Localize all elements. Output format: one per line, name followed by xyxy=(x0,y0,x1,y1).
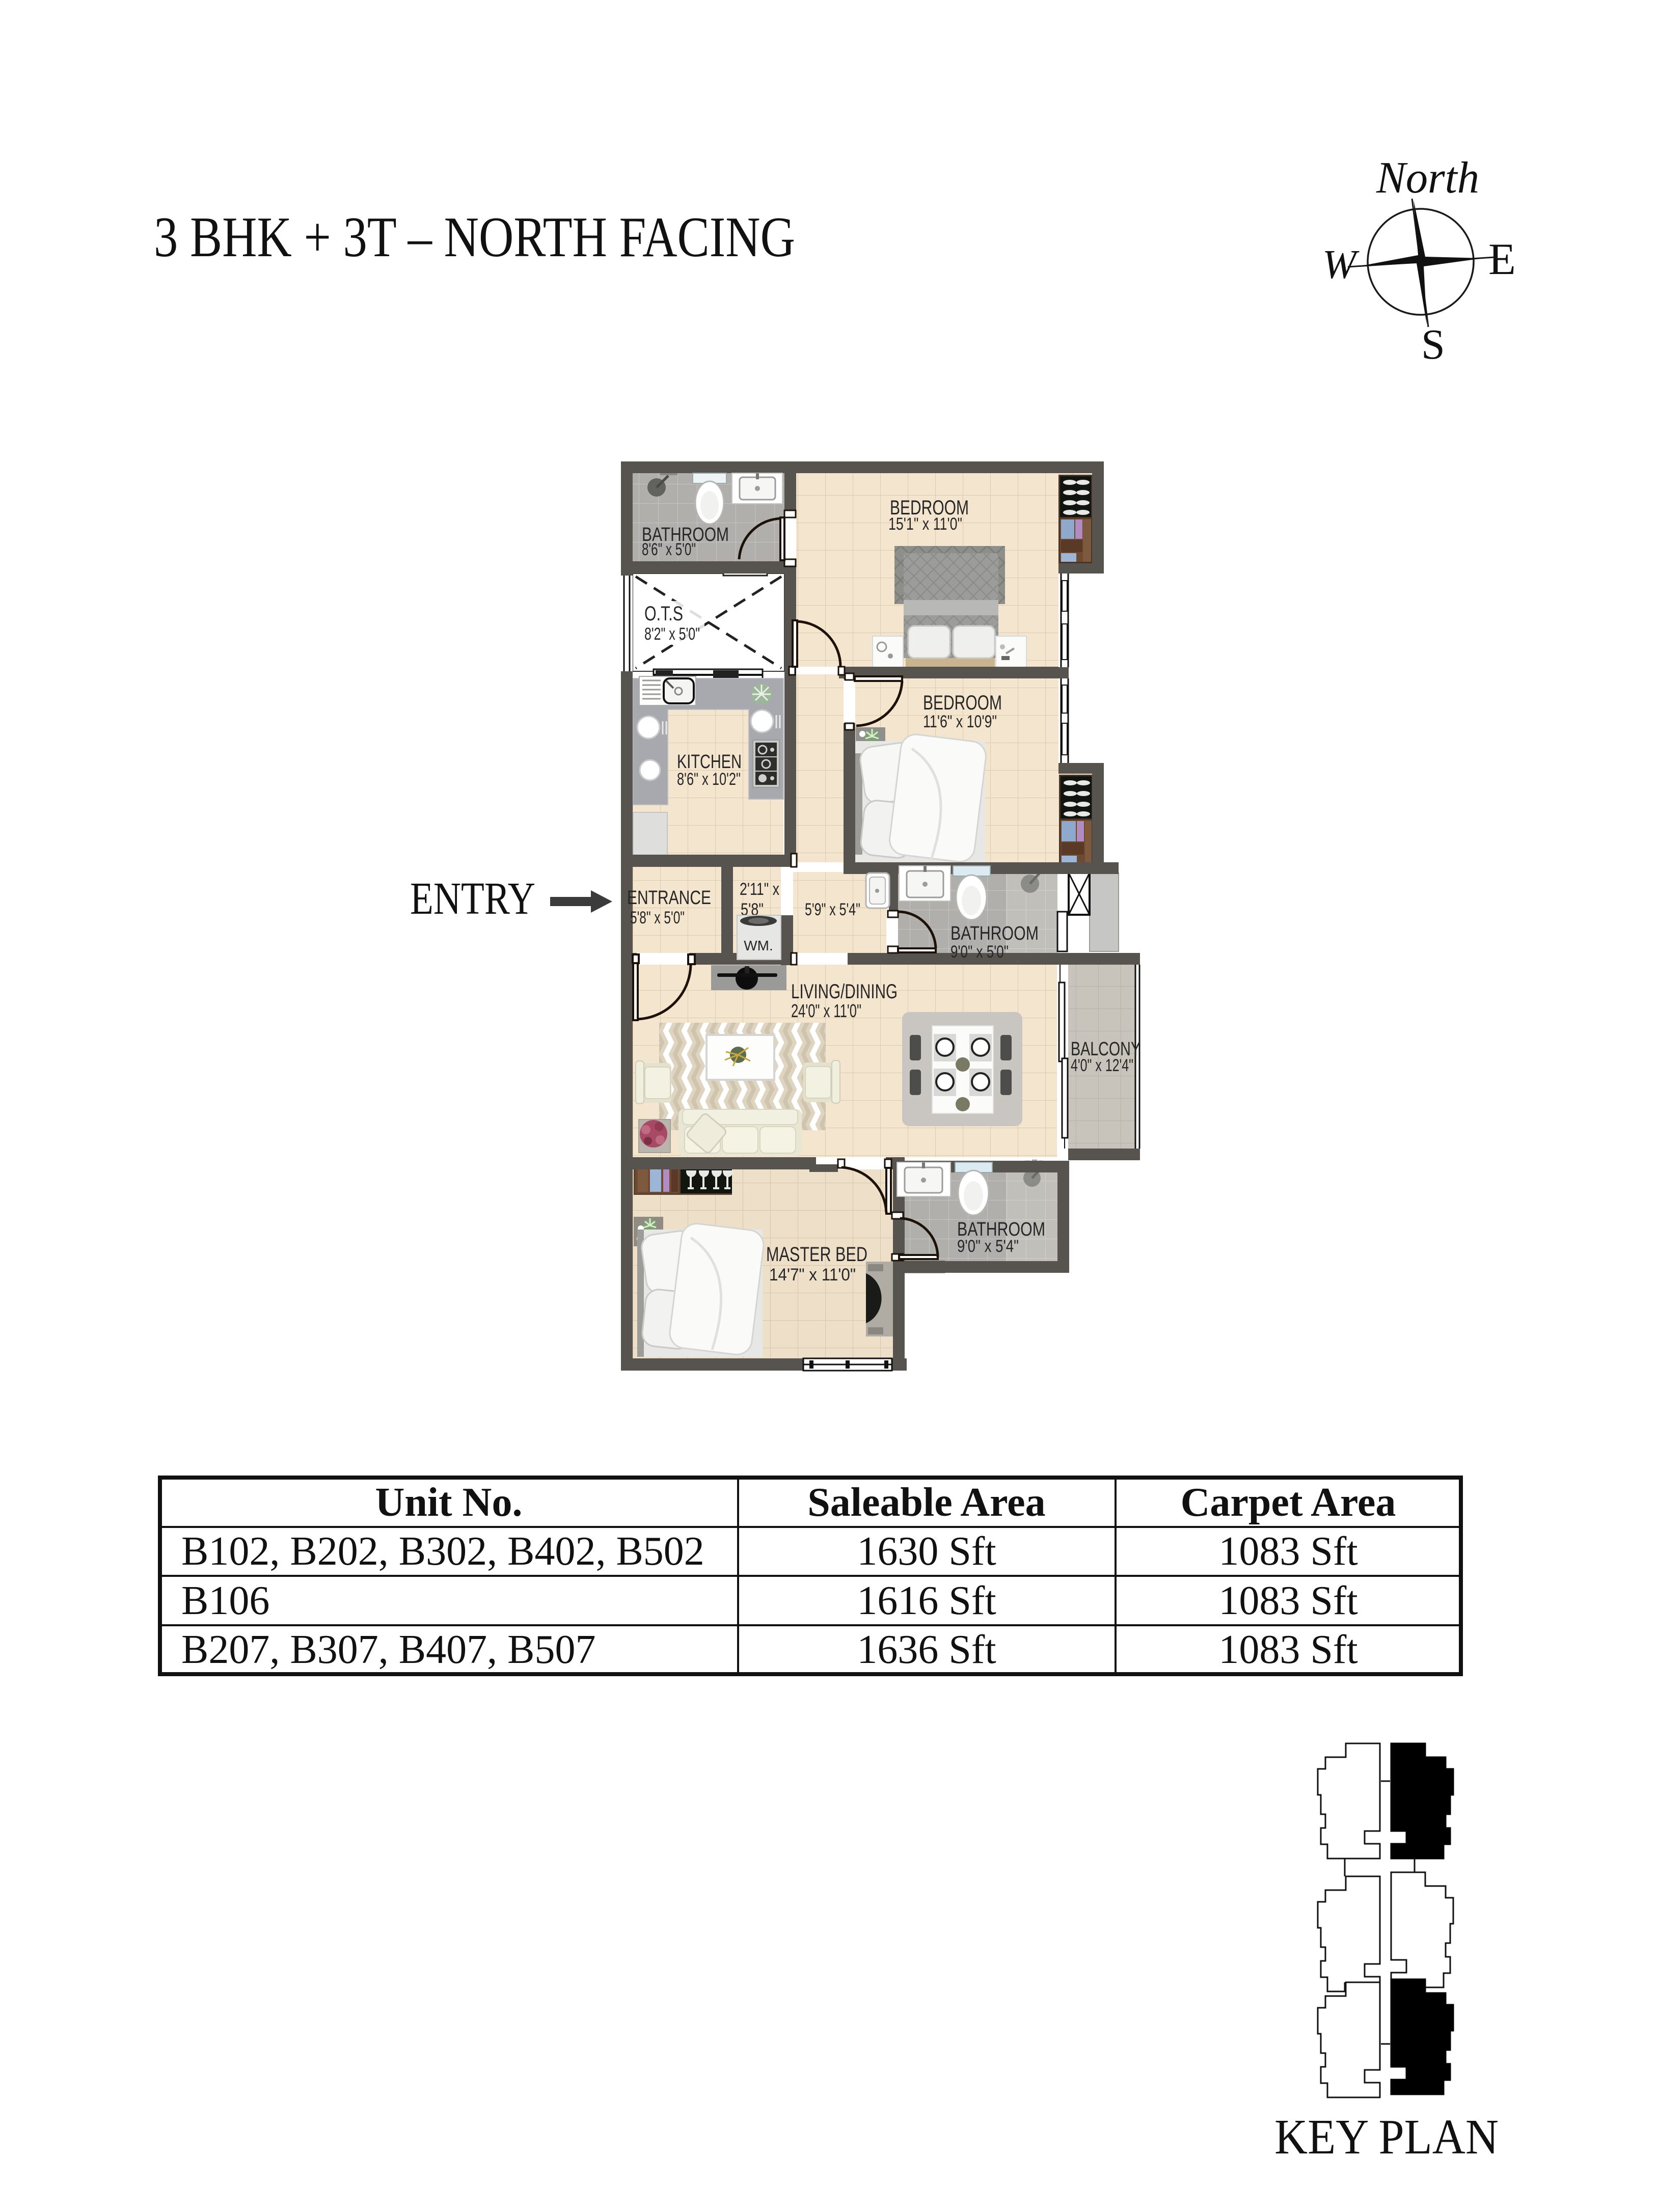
svg-text:1616 Sft: 1616 Sft xyxy=(857,1578,996,1623)
svg-text:BATHROOM: BATHROOM xyxy=(950,923,1039,944)
svg-text:11'6" x 10'9": 11'6" x 10'9" xyxy=(923,712,997,731)
svg-text:B102, B202, B302, B402, B502: B102, B202, B302, B402, B502 xyxy=(181,1529,704,1574)
svg-text:North: North xyxy=(1376,153,1479,203)
svg-text:S: S xyxy=(1421,321,1445,368)
svg-text:14'7" x 11'0": 14'7" x 11'0" xyxy=(769,1265,856,1285)
svg-text:MASTER BED: MASTER BED xyxy=(766,1243,867,1266)
svg-text:8'2" x 5'0": 8'2" x 5'0" xyxy=(644,624,700,644)
svg-text:O.T.S: O.T.S xyxy=(644,603,683,625)
svg-text:8'6" x 10'2": 8'6" x 10'2" xyxy=(677,770,741,789)
svg-text:BEDROOM: BEDROOM xyxy=(923,692,1002,714)
svg-text:1630 Sft: 1630 Sft xyxy=(857,1529,996,1574)
svg-text:LIVING/DINING: LIVING/DINING xyxy=(791,980,898,1003)
svg-text:9'0" x 5'4": 9'0" x 5'4" xyxy=(957,1237,1019,1256)
svg-text:5'8" x 5'0": 5'8" x 5'0" xyxy=(630,908,685,927)
svg-text:9'0" x 5'0": 9'0" x 5'0" xyxy=(950,942,1009,962)
svg-text:WM.: WM. xyxy=(744,938,773,953)
svg-text:1083 Sft: 1083 Sft xyxy=(1218,1529,1357,1574)
svg-text:W: W xyxy=(1322,242,1360,287)
svg-text:KEY PLAN: KEY PLAN xyxy=(1274,2110,1499,2165)
svg-text:3 BHK + 3T – NORTH FACING: 3 BHK + 3T – NORTH FACING xyxy=(154,206,795,269)
svg-text:8'6" x 5'0": 8'6" x 5'0" xyxy=(642,540,696,559)
svg-text:Saleable Area: Saleable Area xyxy=(807,1480,1045,1525)
svg-text:B207, B307, B407, B507: B207, B307, B407, B507 xyxy=(181,1627,595,1672)
svg-text:4'0" x 12'4": 4'0" x 12'4" xyxy=(1071,1056,1133,1075)
svg-text:2'11" x: 2'11" x xyxy=(740,880,779,899)
svg-text:Carpet Area: Carpet Area xyxy=(1181,1480,1396,1525)
svg-text:E: E xyxy=(1488,235,1516,284)
svg-text:Unit No.: Unit No. xyxy=(375,1480,523,1525)
svg-text:24'0" x 11'0": 24'0" x 11'0" xyxy=(791,1000,861,1021)
svg-text:1636 Sft: 1636 Sft xyxy=(857,1627,996,1672)
svg-text:ENTRY: ENTRY xyxy=(410,873,535,924)
svg-text:1083 Sft: 1083 Sft xyxy=(1218,1627,1357,1672)
svg-text:5'9" x 5'4": 5'9" x 5'4" xyxy=(805,900,860,919)
svg-text:ENTRANCE: ENTRANCE xyxy=(627,887,711,909)
svg-text:1083 Sft: 1083 Sft xyxy=(1218,1578,1357,1623)
svg-text:15'1" x 11'0": 15'1" x 11'0" xyxy=(888,514,962,534)
svg-text:B106: B106 xyxy=(181,1578,269,1623)
